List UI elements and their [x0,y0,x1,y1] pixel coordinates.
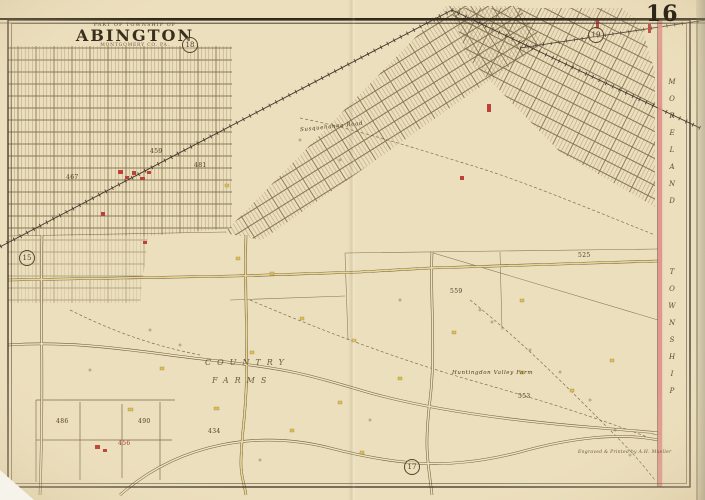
parcel-number: 486 [56,418,69,425]
title-block: PART OF TOWNSHIP OF ABINGTON MONTGOMERY … [70,22,200,48]
fold-crease [348,0,356,500]
publisher-credit: Engraved & Printed by A.H. Mueller [578,450,672,455]
farm-name-label: Huntingdon Valley Farm [452,370,533,376]
estate-label-line2: FARMS [212,376,272,385]
boundary-township-name-1: MORELAND [668,78,676,253]
adjoining-plate-badge-19: 19 [588,27,604,43]
parcel-number: 481 [194,162,207,169]
parcel-number: 525 [578,252,591,259]
parcel-number: 559 [450,288,463,295]
page-corner-sliver [0,470,34,500]
parcel-number: 434 [208,428,221,435]
adjoining-plate-badge-18: 18 [182,37,198,53]
map-title: ABINGTON [70,28,200,43]
adjoining-plate-badge-15: 15 [19,250,35,266]
parcel-number: 456 [118,440,131,447]
scan-edge-shade [696,0,705,500]
estate-label-line1: COUNTRY [205,358,290,367]
plate-number: 16 [646,1,679,27]
boundary-township-name-2: TOWNSHIP [668,268,676,443]
parcel-number: 467 [66,174,79,181]
parcel-number: 553 [518,393,531,400]
parcel-number: 459 [150,148,163,155]
adjoining-plate-badge-17: 17 [404,459,420,475]
parcel-number: 490 [138,418,151,425]
atlas-plate-page: 16 PART OF TOWNSHIP OF ABINGTON MONTGOME… [0,0,705,500]
